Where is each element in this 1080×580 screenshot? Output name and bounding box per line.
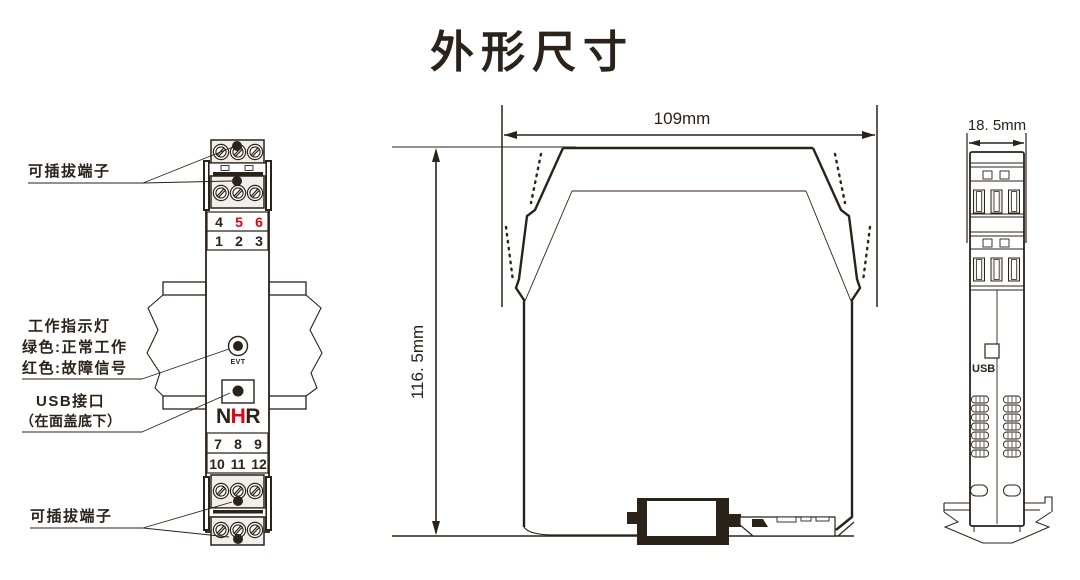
terminal-number: 3: [255, 233, 263, 249]
screw-icon: [247, 144, 262, 159]
arrowhead-left: [969, 140, 980, 147]
terminal-numbers-top: 4 5 6 1 2 3: [207, 212, 268, 250]
terminal-slot: [991, 258, 1002, 281]
terminal-slot: [974, 190, 985, 213]
callout-indicator: 工作指示灯 绿色:正常工作 红色:故障信号: [22, 317, 229, 379]
terminal-number: 5: [235, 214, 243, 230]
callout-terminal-bottom: 可插拔端子: [30, 502, 232, 537]
screw-icon: [247, 522, 262, 537]
cover-seam-line: [525, 191, 851, 301]
module-end-body: USB: [970, 152, 1024, 532]
callout-terminal-top: 可插拔端子: [28, 147, 233, 183]
leader-dot: [232, 176, 242, 186]
terminal-slot: [1009, 190, 1020, 213]
end-view: 18. 5mm USB: [944, 117, 1052, 543]
terminal-number: 9: [254, 436, 262, 452]
screw-icon: [247, 185, 262, 200]
dimension-width: 109mm: [502, 105, 877, 307]
housing-profile: [506, 148, 870, 535]
dimension-height-label: 116. 5mm: [408, 325, 427, 399]
release-latch: [740, 517, 854, 536]
usb-port-end: [985, 344, 999, 358]
dimension-width-label: 109mm: [654, 109, 711, 128]
screw-icon: [247, 483, 262, 498]
label-indicator-line3: 红色:故障信号: [22, 359, 128, 377]
dimension-drawing: 外形尺寸: [0, 0, 1080, 580]
front-view: 4 5 6 1 2 3 EVT NHR 7 8 9 10 11: [20, 140, 322, 545]
arrowhead-top: [432, 148, 440, 162]
arrowhead-right: [1013, 140, 1024, 147]
hidden-line: [863, 227, 870, 281]
usb-label: USB: [972, 363, 995, 375]
terminal-number: 11: [231, 456, 246, 472]
terminal-number: 1: [215, 233, 223, 249]
hidden-line: [506, 227, 513, 281]
terminal-number: 6: [255, 214, 263, 230]
arrowhead-right: [862, 131, 875, 139]
side-view: 109mm 116. 5mm: [392, 105, 877, 545]
label-indicator-line1: 工作指示灯: [28, 317, 111, 335]
terminal-slot: [991, 190, 1002, 213]
terminal-number: 8: [234, 436, 242, 452]
label-usb-line1: USB接口: [36, 392, 105, 410]
terminal-block-top: [204, 140, 271, 210]
hidden-line: [531, 154, 541, 203]
dimension-height: 116. 5mm: [392, 147, 854, 536]
terminal-block-bottom: [204, 475, 271, 545]
terminal-number: 2: [235, 233, 243, 249]
leader-dot: [233, 386, 244, 397]
led-label: EVT: [230, 359, 245, 366]
page-title: 外形尺寸: [430, 28, 634, 77]
arrowhead-bottom: [432, 521, 440, 535]
screw-icon: [213, 483, 228, 498]
label-pluggable-terminal-bottom: 可插拔端子: [30, 507, 113, 525]
hidden-line: [835, 154, 845, 203]
terminal-numbers-bottom: 7 8 9 10 11 12: [207, 433, 268, 473]
terminal-number: 4: [215, 214, 223, 230]
terminal-slot: [1009, 258, 1020, 281]
screw-icon: [230, 185, 245, 200]
callout-usb: USB接口 （在面盖底下）: [20, 392, 230, 432]
dimension-depth-label: 18. 5mm: [968, 117, 1026, 134]
nhr-logo: NHR: [216, 405, 260, 428]
terminal-number: 10: [209, 456, 225, 472]
terminal-number: 7: [214, 436, 222, 452]
din-clip: [627, 498, 741, 545]
leader-dot: [233, 534, 243, 544]
terminal-number: 12: [251, 456, 267, 472]
label-usb-line2: （在面盖底下）: [20, 413, 122, 429]
arrowhead-left: [504, 131, 517, 139]
label-indicator-line2: 绿色:正常工作: [22, 338, 128, 356]
terminal-slot: [974, 258, 985, 281]
leader-dot: [233, 496, 243, 506]
label-pluggable-terminal-top: 可插拔端子: [28, 162, 111, 180]
leader-dot: [232, 141, 242, 151]
screw-icon: [213, 185, 228, 200]
usb-port: [222, 380, 254, 403]
